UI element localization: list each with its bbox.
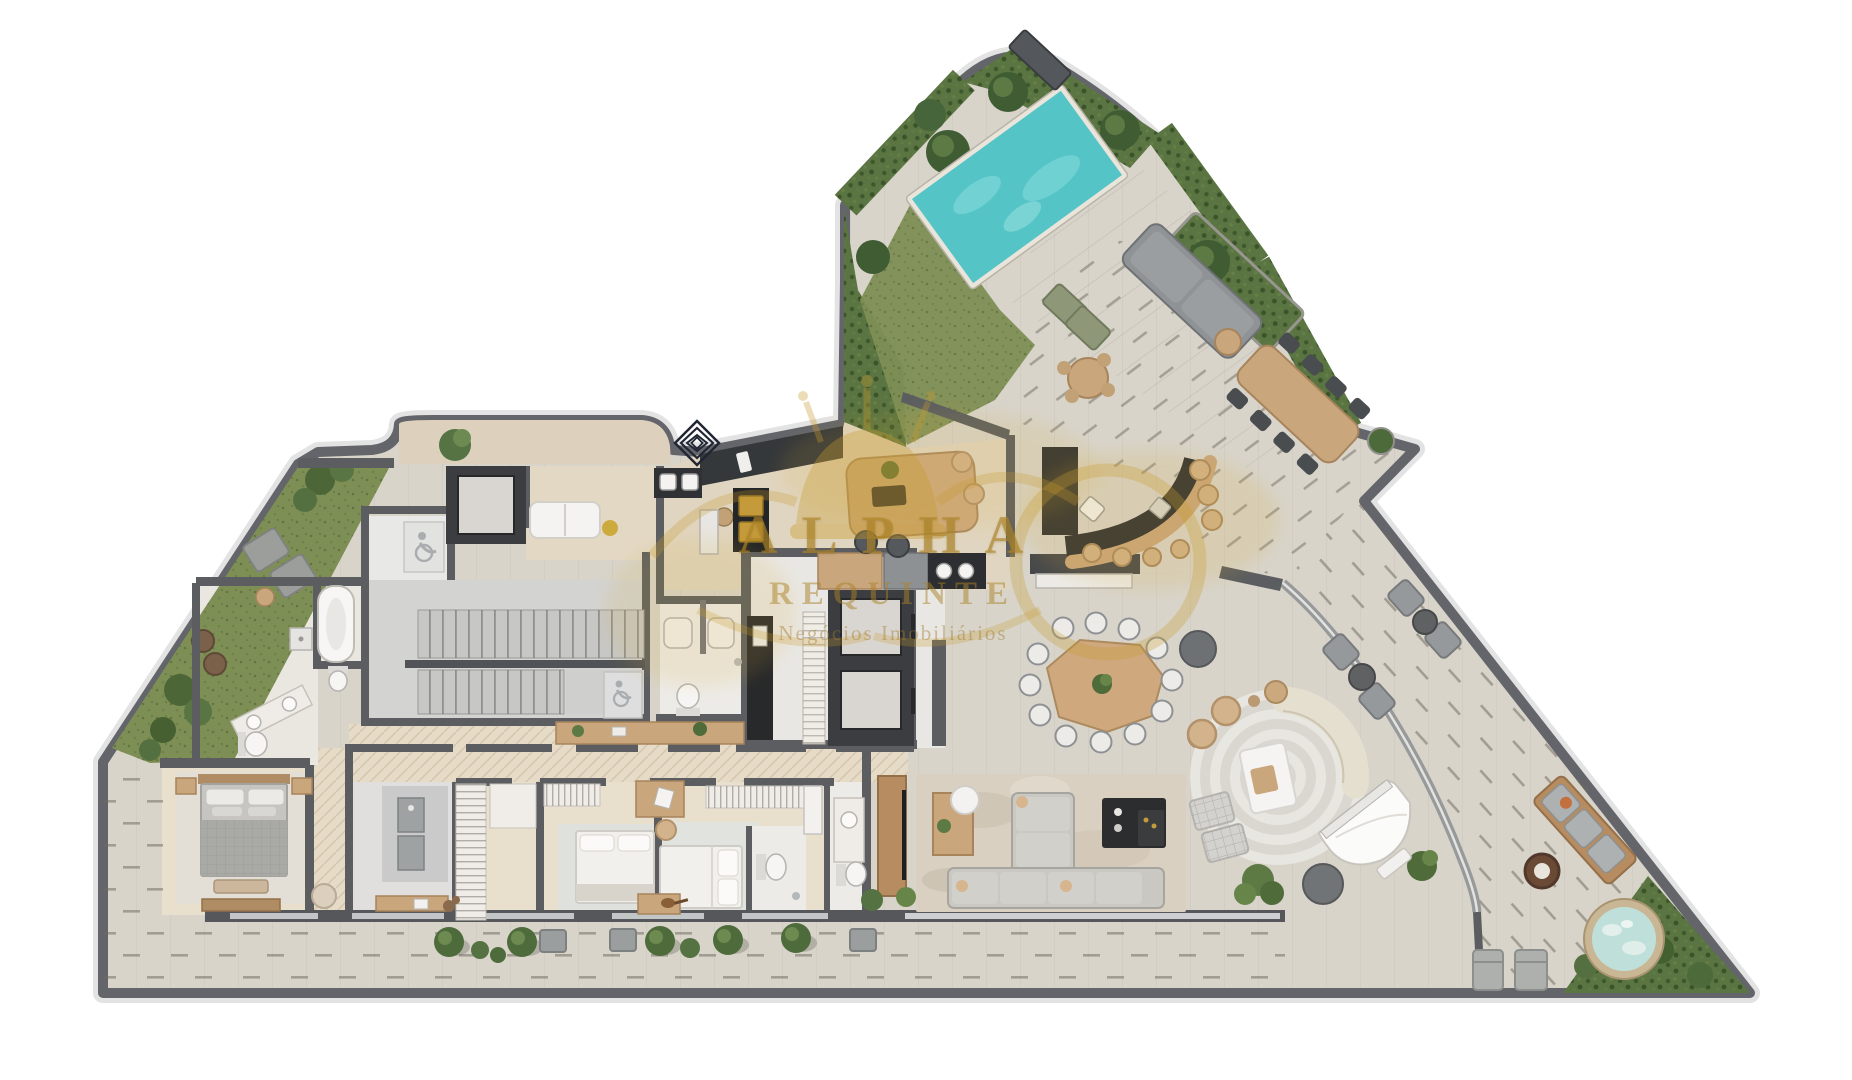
bar-cart-bottle: [1152, 824, 1157, 829]
shrub: [150, 717, 176, 743]
dog-head: [452, 896, 460, 904]
living-plant: [1260, 881, 1284, 905]
terrace-chair: [610, 929, 636, 951]
palm-highlight: [932, 135, 954, 157]
sofa-cushion: [1000, 872, 1046, 904]
stair-treads: [418, 670, 564, 714]
bedroom3-pillow: [718, 850, 738, 876]
window: [478, 913, 574, 919]
table-decor: [1114, 824, 1122, 832]
wall: [160, 758, 310, 768]
master-pillow: [248, 789, 284, 805]
shower-column: [804, 786, 822, 834]
palm-tree: [856, 240, 890, 274]
wall: [192, 583, 200, 765]
watermark-crown-orb: [798, 391, 808, 401]
bathtub-basin: [326, 598, 346, 650]
table-decor: [1114, 808, 1122, 816]
gold-side-table: [602, 520, 618, 536]
palm-tree: [914, 99, 946, 131]
entry-plant: [453, 429, 471, 447]
palm-highlight: [1105, 115, 1125, 135]
tv-panel: [878, 776, 906, 896]
watermark-crown-band: [790, 524, 946, 539]
toilet-bowl: [329, 671, 347, 691]
scene-root: [103, 29, 1750, 993]
elevator-door: [911, 614, 915, 640]
toilet-tank: [756, 854, 766, 880]
island-sink: [959, 564, 974, 579]
dining-chair-white: [1119, 619, 1140, 640]
dining-chair-white: [1086, 613, 1107, 634]
elevator-cabin: [841, 671, 901, 729]
washer: [398, 798, 424, 832]
master-pillow-small: [212, 807, 242, 816]
sofa-pillow: [1060, 880, 1072, 892]
window: [352, 913, 444, 919]
dining-chair-white: [1028, 644, 1049, 665]
hot-tub-foam: [1622, 941, 1646, 955]
garden-pouf: [204, 653, 226, 675]
nightstand: [292, 778, 312, 794]
laundry-sink: [414, 899, 428, 909]
dining-chair-white: [1091, 732, 1112, 753]
dining-chair-white: [1056, 726, 1077, 747]
dining-centerpiece-plant: [1100, 674, 1112, 686]
terrace-chair: [850, 929, 876, 951]
corner-plant-pot: [1368, 428, 1394, 454]
terrace-tree-highlight: [785, 927, 799, 941]
wheelchair-icon: [418, 532, 426, 540]
window: [230, 913, 318, 919]
wall: [736, 744, 806, 752]
elevator-door: [911, 688, 915, 714]
wall: [576, 744, 638, 752]
toilet-tank: [676, 708, 700, 716]
terrace-side-table: [1413, 610, 1437, 634]
accessible-marker-box: [604, 672, 642, 718]
shower-head: [792, 892, 800, 900]
wall: [668, 744, 720, 752]
wall: [345, 744, 353, 916]
hot-tub-foam: [1602, 924, 1622, 936]
watermark-crown-orb: [861, 375, 873, 387]
wall: [824, 782, 830, 916]
wall: [656, 714, 748, 722]
terrace-tree: [680, 938, 700, 958]
terrace-tree-highlight: [649, 930, 663, 944]
dining-chair-white: [1125, 724, 1146, 745]
window: [742, 913, 828, 919]
bedroom2-pillow: [580, 835, 614, 851]
toilet-bowl: [245, 732, 267, 756]
corridor-console: [556, 722, 744, 744]
barrel-chair: [1188, 720, 1216, 748]
master-headboard: [198, 774, 290, 784]
accent-pouf: [312, 884, 336, 908]
elevator-cabin: [841, 599, 901, 655]
toilet-bowl: [846, 862, 866, 886]
wall: [536, 782, 544, 916]
master-pillow-small: [248, 807, 276, 816]
shrub: [293, 488, 317, 512]
tray-table: [951, 786, 979, 814]
dresser: [202, 899, 280, 911]
garden-side-table: [256, 588, 274, 606]
palm-highlight: [993, 77, 1013, 97]
bedroom3-pillow: [718, 879, 738, 905]
floorplan-svg: [0, 0, 1852, 1080]
master-duvet-quilt: [201, 820, 287, 876]
terrace-tree-highlight: [511, 931, 525, 945]
kitchen-sink: [682, 474, 698, 490]
sun-lounger: [1515, 950, 1547, 990]
wall: [365, 506, 453, 514]
island-sink: [937, 564, 952, 579]
console-plant: [572, 725, 584, 737]
console-plant: [937, 819, 951, 833]
sofa-pillow: [956, 880, 968, 892]
wardrobe-lines: [706, 786, 806, 808]
wall: [746, 826, 752, 916]
pantry-shelf-lines: [803, 612, 825, 744]
pouf-dark: [1180, 631, 1216, 667]
pouf-dark: [1303, 864, 1343, 904]
desk-chair: [656, 820, 676, 840]
bedroom2-pillow: [618, 835, 650, 851]
shower-drain: [299, 637, 304, 642]
console-plant: [693, 722, 707, 736]
wall: [361, 506, 369, 726]
sofa-cushion: [1016, 833, 1070, 867]
dining-chair-white: [1152, 701, 1173, 722]
dining-chair-white: [1030, 705, 1051, 726]
deck-side-table-top: [1534, 863, 1550, 879]
bar-cart: [1138, 810, 1164, 846]
kitchen-sink: [660, 474, 676, 490]
wall: [466, 744, 552, 752]
wheelchair-icon: [616, 681, 623, 688]
service-elevator-cabin: [458, 476, 514, 534]
living-plant: [1234, 883, 1256, 905]
island-wood: [818, 553, 882, 589]
wall: [932, 640, 946, 746]
guitar: [661, 898, 675, 908]
terrace-chair: [540, 930, 566, 952]
bar-cart-bottle: [1144, 818, 1149, 823]
master-pillow: [206, 789, 244, 805]
outdoor-stool: [1057, 361, 1071, 375]
toilet-tank: [836, 864, 846, 886]
dryer: [398, 836, 424, 870]
washer-dial: [408, 805, 414, 811]
hot-tub-foam: [1621, 920, 1633, 928]
wall: [744, 778, 834, 786]
console-frame: [612, 727, 626, 736]
side-table-tan: [1248, 695, 1260, 707]
sun-lounger: [1473, 950, 1503, 990]
sofa-cushion: [1096, 872, 1142, 904]
wardrobe-lines: [456, 784, 486, 920]
vanity: [834, 798, 864, 862]
outdoor-stool: [1101, 383, 1115, 397]
tv-plant: [896, 887, 916, 907]
left-terrace-pavers: [103, 765, 163, 993]
watermark-crown-orb: [926, 391, 936, 401]
wall: [298, 458, 394, 468]
nightstand: [176, 778, 196, 794]
island-appliance: [884, 553, 928, 589]
side-table-tan: [1265, 681, 1287, 703]
terrace-tree-highlight: [717, 929, 731, 943]
hot-tub-water: [1592, 907, 1656, 971]
oven-gold: [739, 522, 763, 542]
stair-rail: [405, 660, 645, 668]
wardrobe-lines: [544, 784, 600, 806]
shrub: [139, 739, 161, 761]
vanity-sink: [841, 812, 857, 828]
sofa-pillow: [1016, 796, 1028, 808]
shrub: [1687, 962, 1713, 988]
window-living-glass: [905, 913, 1280, 919]
tv-screen: [902, 790, 906, 880]
floorplan-canvas: ALPHA REQUINTE Negócios Imobiliários: [0, 0, 1852, 1080]
bed-bench: [214, 880, 268, 893]
wall: [196, 577, 368, 586]
terrace-side-table: [1349, 664, 1375, 690]
wardrobe: [490, 784, 536, 828]
outdoor-stool: [1097, 353, 1111, 367]
piano-plant: [1422, 850, 1438, 866]
laundry-counter: [376, 896, 448, 911]
tv-plant: [861, 889, 883, 911]
terrace-tree: [471, 941, 489, 959]
dining-chair-white: [1162, 670, 1183, 691]
outdoor-stool: [1065, 389, 1079, 403]
terrace-tree: [490, 947, 506, 963]
toilet-bowl: [677, 684, 699, 708]
wall: [349, 744, 453, 752]
terrace-tree-highlight: [438, 931, 452, 945]
toilet-bowl: [766, 854, 786, 880]
barrel-chair: [1212, 697, 1240, 725]
outdoor-coffee-table: [1215, 329, 1241, 355]
dining-chair-white: [1020, 675, 1041, 696]
